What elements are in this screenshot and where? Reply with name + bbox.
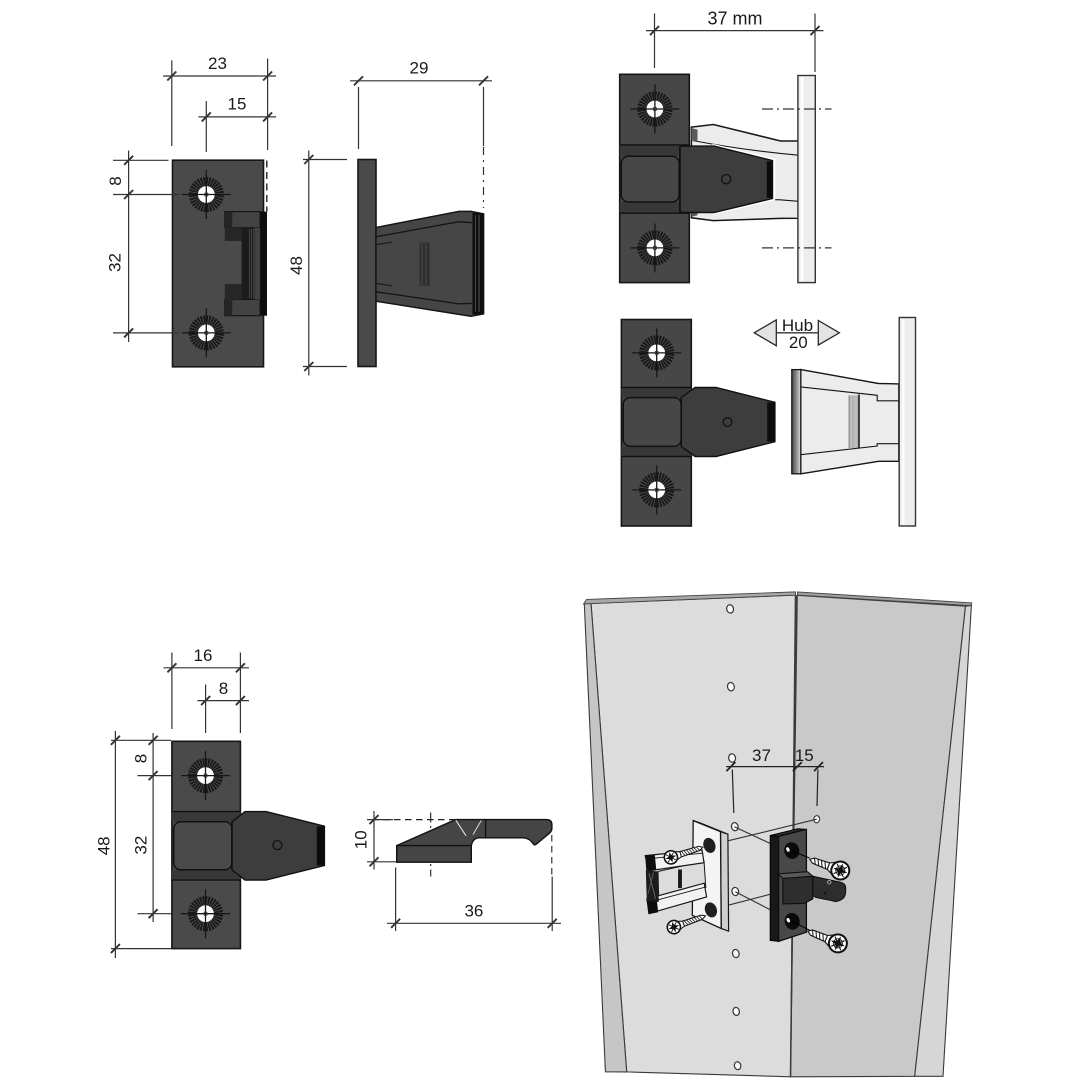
svg-text:10: 10 (351, 830, 370, 849)
svg-text:29: 29 (410, 59, 429, 78)
svg-text:37: 37 (752, 746, 771, 765)
svg-text:8: 8 (132, 754, 151, 763)
svg-text:20: 20 (789, 333, 808, 352)
svg-text:32: 32 (106, 253, 125, 272)
svg-text:48: 48 (95, 836, 114, 855)
svg-text:32: 32 (132, 836, 151, 855)
svg-text:8: 8 (106, 176, 125, 185)
svg-text:8: 8 (219, 679, 228, 698)
svg-text:48: 48 (287, 256, 306, 275)
svg-text:15: 15 (795, 746, 814, 765)
svg-text:16: 16 (194, 646, 213, 665)
svg-text:15: 15 (228, 95, 247, 114)
svg-text:23: 23 (208, 54, 227, 73)
svg-text:36: 36 (464, 901, 483, 920)
svg-text:37 mm: 37 mm (707, 8, 762, 28)
